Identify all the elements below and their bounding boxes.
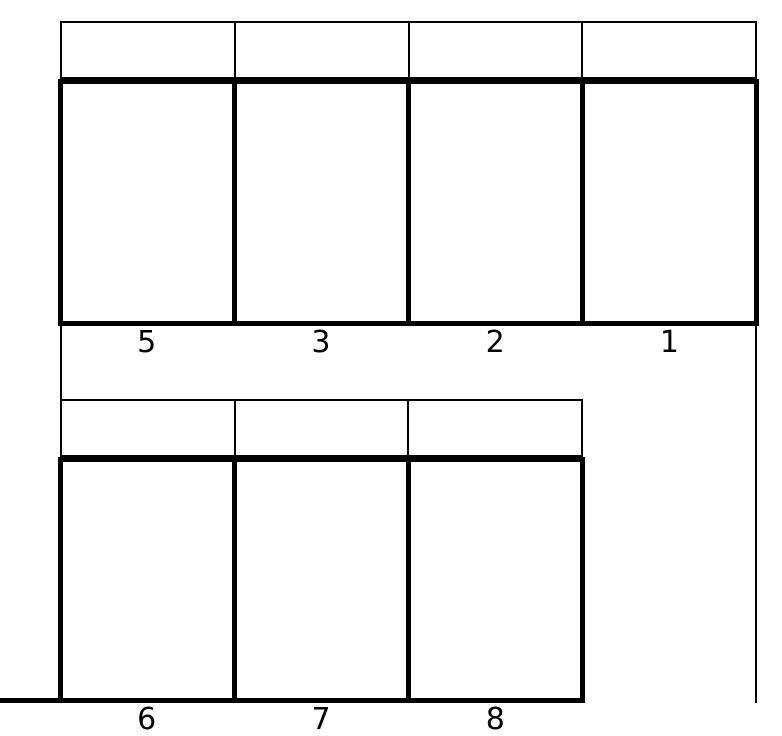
bottom-baseline-line (0, 698, 60, 703)
node-5-body-cell (63, 84, 237, 321)
left-connector-line (60, 324, 62, 459)
node-8-label: 8 (409, 705, 583, 735)
node-7-header-cell (236, 401, 410, 455)
bottom-row-header-band (60, 399, 583, 457)
node-7-body-cell (237, 462, 411, 698)
node-5-label: 5 (60, 328, 234, 358)
node-6-header-cell (62, 401, 236, 455)
node-8-body-cell (411, 462, 580, 698)
node-1-body-cell (585, 84, 754, 321)
node-2-body-cell (411, 84, 585, 321)
node-7-label: 7 (234, 705, 408, 735)
diagram-canvas: 5 3 2 1 6 7 8 (0, 0, 782, 736)
right-connector-line (755, 324, 757, 703)
node-3-body-cell (237, 84, 411, 321)
node-8-header-cell (409, 401, 581, 455)
top-row-body-band (58, 79, 759, 326)
node-1-header-cell (583, 23, 755, 77)
node-5-header-cell (62, 23, 236, 77)
node-2-label: 2 (409, 328, 583, 358)
bottom-row-body-band (58, 457, 585, 703)
node-3-header-cell (236, 23, 410, 77)
node-3-label: 3 (234, 328, 408, 358)
node-2-header-cell (410, 23, 584, 77)
node-6-label: 6 (60, 705, 234, 735)
node-6-body-cell (63, 462, 237, 698)
top-row-labels: 5 3 2 1 (60, 328, 757, 358)
node-1-label: 1 (583, 328, 757, 358)
top-row-header-band (60, 21, 757, 79)
bottom-row-labels: 6 7 8 (60, 705, 583, 735)
